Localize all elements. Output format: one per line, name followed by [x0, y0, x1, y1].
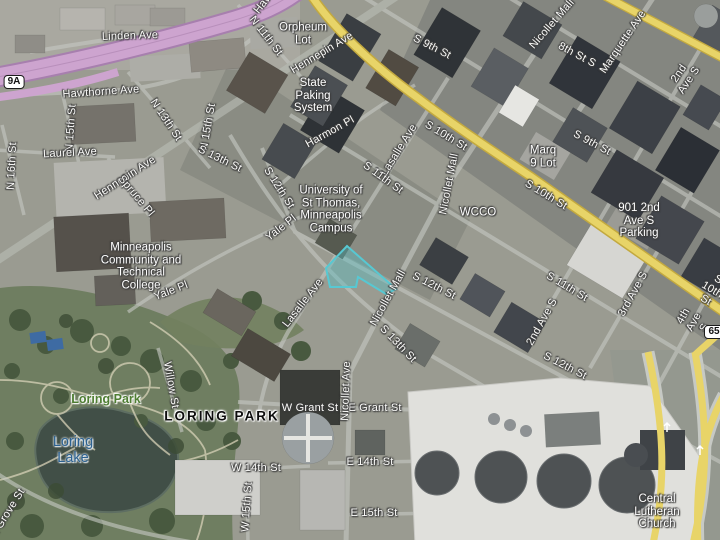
aerial-map[interactable]: Linden AveHawthorne AveHawthorne AveN 11…	[0, 0, 720, 540]
map-imagery	[0, 0, 720, 540]
